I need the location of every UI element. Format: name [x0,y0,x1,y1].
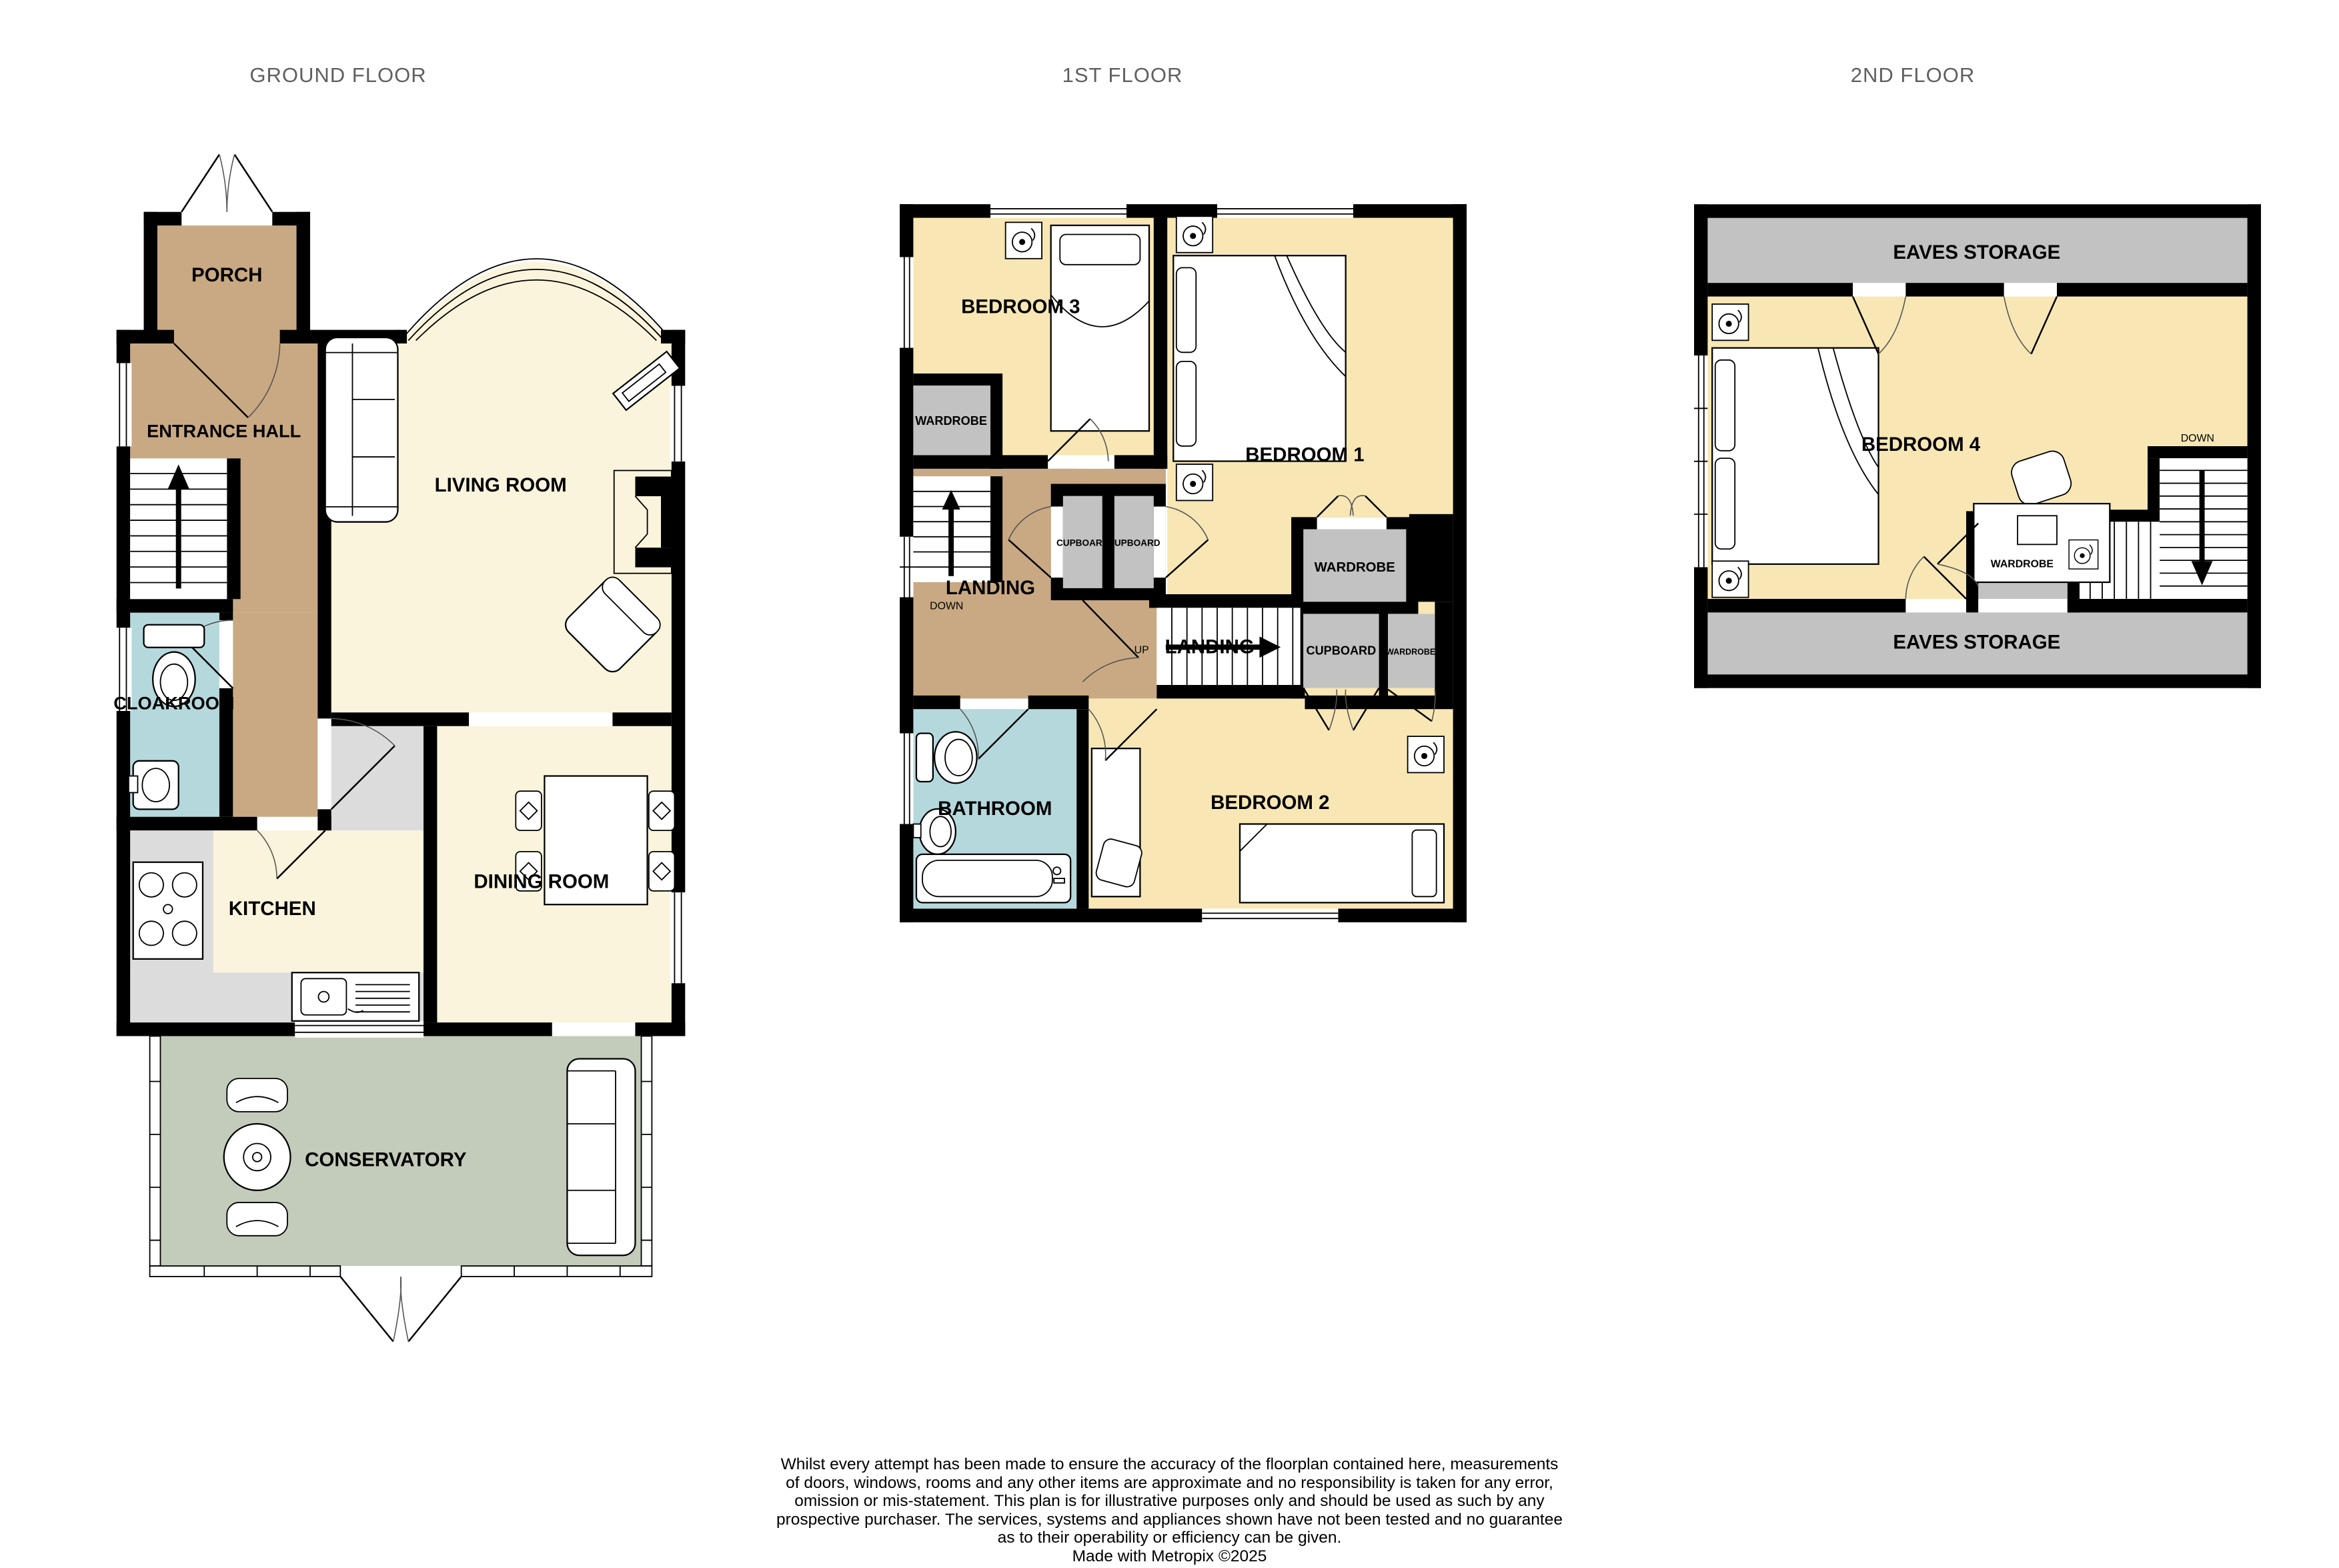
first-floor-title: 1ST FLOOR [1062,63,1183,87]
disclaimer-line: of doors, windows, rooms and any other i… [0,1474,2339,1493]
kitchen-label: KITCHEN [229,898,316,920]
disclaimer-line: omission or mis-statement. This plan is … [0,1492,2339,1511]
first-floor-plan: BEDROOM 3 BEDROOM 1 WARDROBE CUPBOARD CU… [900,204,1467,922]
eaves-storage-label: EAVES STORAGE [1893,632,2060,654]
landing-label: LANDING [1165,636,1255,658]
down-label: DOWN [2181,433,2214,444]
conservatory-sofa-icon [567,1059,635,1256]
up-label: UP [1134,644,1149,656]
bed-double-icon [1712,348,1878,564]
floorplan-page: GROUND FLOOR 1ST FLOOR 2ND FLOOR [0,0,2339,1568]
bedroom2-label: BEDROOM 2 [1211,792,1329,814]
wall-light-icon [1177,216,1213,252]
cupboard-label: CUPBOARD [1306,644,1376,658]
second-floor-plan: EAVES STORAGE BEDROOM 4 WARDROBE DOWN EA… [1694,204,2261,688]
disclaimer-line: Whilst every attempt has been made to en… [0,1455,2339,1474]
wall-light-icon [1177,464,1213,500]
bed-single-icon [1051,225,1149,431]
cloakroom-label: CLOAKROOM [113,693,234,714]
wall-light-icon [1712,304,1748,340]
down-label: DOWN [930,601,963,612]
disclaimer: Whilst every attempt has been made to en… [0,1455,2339,1566]
staircase-down-icon [913,476,990,582]
bedroom1-label: BEDROOM 1 [1245,444,1364,466]
window-icon [1694,355,1707,567]
disclaimer-line: as to their operability or efficiency ca… [0,1529,2339,1547]
bedroom3-label: BEDROOM 3 [961,295,1080,317]
bath-icon [916,854,1070,903]
credit-line: Made with Metropix ©2025 [0,1547,2339,1566]
bed-single-icon [1240,824,1444,903]
staircase-icon [130,458,227,599]
sink-icon [292,972,419,1021]
wardrobe-label: WARDROBE [1386,648,1435,657]
wardrobe-label: WARDROBE [1991,558,2054,570]
cupboard-label: CUPBOARD [1108,538,1160,548]
eaves-storage-label: EAVES STORAGE [1893,241,2060,263]
landing-label: LANDING [946,577,1035,599]
round-table-icon [224,1078,291,1236]
entrance-hall-label: ENTRANCE HALL [147,421,301,442]
hob-icon [133,862,203,959]
dining-room-label: DINING ROOM [474,870,609,892]
sofa-icon [325,337,398,522]
living-room-label: LIVING ROOM [435,474,567,496]
second-floor-title: 2ND FLOOR [1851,63,1975,87]
wardrobe-label: WARDROBE [915,414,987,428]
desk-icon [1092,748,1144,896]
wall-light-icon [1408,736,1444,772]
wardrobe-label: WARDROBE [1315,560,1395,575]
cupboard-label: CUPBOARD [1056,538,1109,548]
toilet-icon [916,732,977,783]
wardrobe-bedroom1 [1303,517,1406,602]
bed-double-icon [1173,255,1345,461]
bedroom4-label: BEDROOM 4 [1861,434,1981,456]
wall-light-icon [1712,561,1748,597]
porch-label: PORCH [191,264,262,286]
conservatory-label: CONSERVATORY [305,1148,467,1170]
disclaimer-line: prospective purchaser. The services, sys… [0,1511,2339,1529]
wall-light-icon [1006,222,1042,258]
ground-floor-plan: PORCH ENTRANCE HALL LIVING ROOM CLOAKROO… [113,83,688,1384]
basin-icon [129,761,179,810]
bathroom-label: BATHROOM [938,798,1052,820]
